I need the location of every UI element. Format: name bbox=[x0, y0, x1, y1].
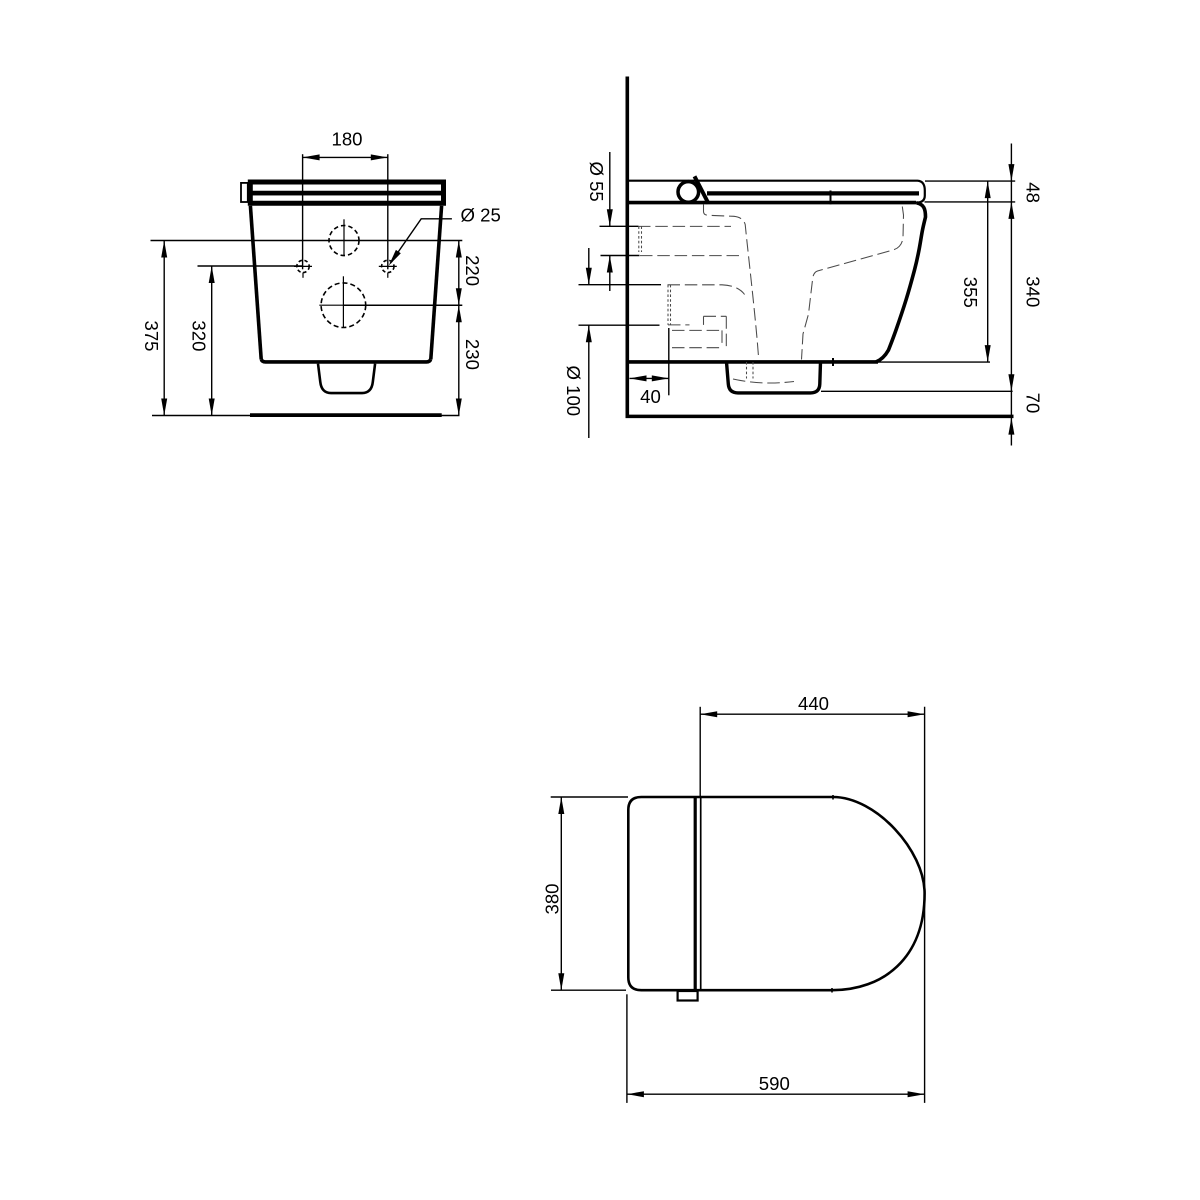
svg-text:180: 180 bbox=[331, 129, 362, 150]
svg-text:590: 590 bbox=[759, 1073, 790, 1094]
svg-text:320: 320 bbox=[189, 320, 210, 351]
svg-text:Ø 100: Ø 100 bbox=[563, 365, 584, 416]
svg-text:Ø 25: Ø 25 bbox=[461, 205, 501, 226]
svg-text:355: 355 bbox=[960, 277, 981, 308]
svg-text:70: 70 bbox=[1022, 393, 1043, 414]
svg-text:40: 40 bbox=[640, 386, 661, 407]
svg-text:220: 220 bbox=[462, 255, 483, 286]
svg-text:Ø 55: Ø 55 bbox=[586, 161, 607, 201]
svg-text:375: 375 bbox=[141, 320, 162, 351]
svg-text:230: 230 bbox=[462, 339, 483, 370]
svg-text:380: 380 bbox=[542, 883, 563, 914]
svg-text:48: 48 bbox=[1022, 182, 1043, 203]
svg-text:340: 340 bbox=[1022, 276, 1043, 307]
svg-text:440: 440 bbox=[798, 693, 829, 714]
